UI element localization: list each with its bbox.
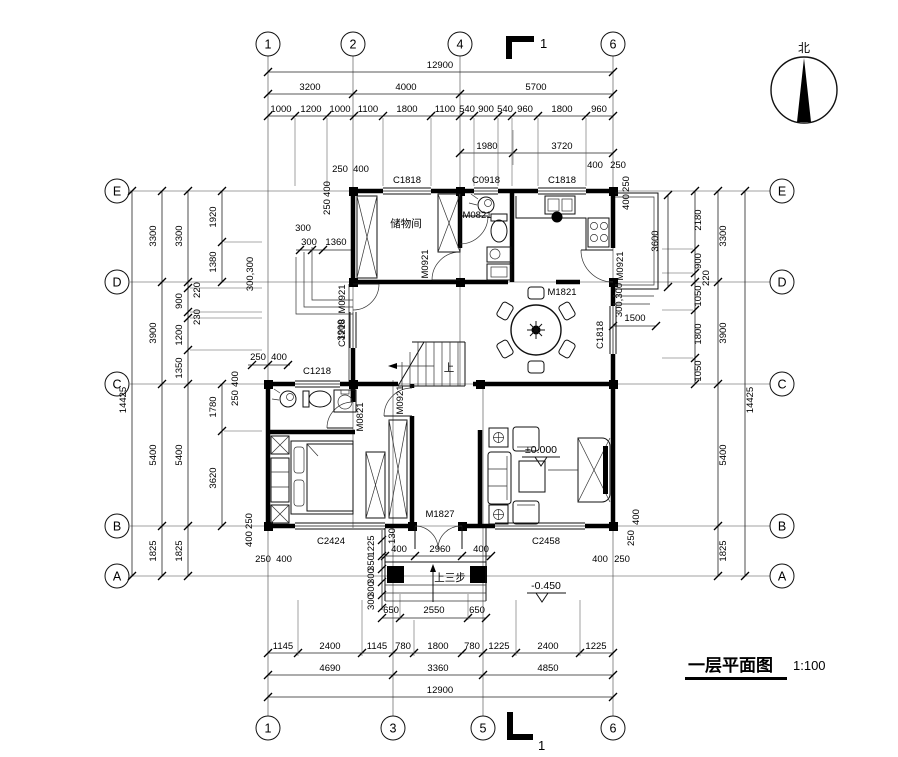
dim: 400 <box>621 194 632 210</box>
dim: 1100 <box>435 104 455 115</box>
dim: 5700 <box>525 82 546 93</box>
dim: 780 <box>464 641 480 652</box>
label-m0821: M0821 <box>355 402 366 431</box>
level-marker-porch: -0.450 <box>527 580 566 602</box>
north-label: 北 <box>798 41 810 55</box>
dim: 14425 <box>745 387 756 413</box>
dim: 1350 <box>174 357 185 378</box>
dim-extension-lines-top <box>295 118 586 186</box>
storage-shafts <box>357 194 460 278</box>
label-m0921: M0921 <box>420 249 431 278</box>
dim: 1145 <box>367 641 387 652</box>
dim: 3300 <box>148 225 159 246</box>
dim: 300,300 <box>245 257 256 291</box>
dim: 3720 <box>551 141 572 152</box>
dim: 5400 <box>174 444 185 465</box>
dim: 3600 <box>650 230 661 251</box>
axis-left-B: B <box>113 520 121 534</box>
window-c1818-storage <box>383 188 431 194</box>
dim: 250 <box>230 390 241 406</box>
axis-right-A: A <box>778 570 787 584</box>
dim: 650 <box>383 605 399 616</box>
dim: 1145 <box>273 641 293 652</box>
bedroom-furniture <box>271 436 353 523</box>
title-scale: 1:100 <box>793 658 826 673</box>
dim: 3300 <box>174 225 185 246</box>
axis-top-2: 2 <box>350 38 357 52</box>
dim: 250 <box>614 554 630 565</box>
drawing-title: 一层平面图 1:100 <box>685 656 826 680</box>
label-c1818: C1818 <box>548 175 576 186</box>
title-text: 一层平面图 <box>688 656 773 675</box>
dims-left: 14425 3300 3900 5400 1825 3300 220 900 2… <box>118 187 353 580</box>
dim: 1825 <box>148 540 159 561</box>
dim: 230 <box>192 309 203 325</box>
axis-bottom-5: 5 <box>480 722 487 736</box>
dim: 1050 <box>693 285 704 306</box>
dim: 3900 <box>718 322 729 343</box>
axis-bottom-6: 6 <box>610 722 617 736</box>
dim: 400 <box>322 181 333 197</box>
dim: 1825 <box>174 540 185 561</box>
dim: 250 <box>250 352 266 363</box>
dim: 2180 <box>693 209 704 230</box>
dim: 400 <box>473 544 489 555</box>
axis-bottom-3: 3 <box>390 722 397 736</box>
dim: 1800 <box>396 104 417 115</box>
dim: 1225 <box>585 641 606 652</box>
window-c0918-bath <box>474 188 498 194</box>
dim: 1200 <box>300 104 321 115</box>
axis-right-D: D <box>777 276 786 290</box>
room-label-storage: 储物间 <box>390 217 422 230</box>
dim: 250 <box>621 176 632 192</box>
door-m0921-kitchen <box>581 250 613 282</box>
label-m0921: M0921 <box>337 284 348 313</box>
dim: 3360 <box>427 663 448 674</box>
dim: 780 <box>395 641 411 652</box>
dim: 4000 <box>395 82 416 93</box>
axis-left-E: E <box>113 185 121 199</box>
dim: 540 <box>497 104 513 115</box>
dim: 3200 <box>299 82 320 93</box>
label-c1218: C1218 <box>303 366 331 377</box>
floor-plan-svg: 1 2 4 6 1 3 5 6 E D C B A E D C B A 1290… <box>0 0 898 757</box>
stair-up-label: 上 <box>444 362 455 374</box>
dims-bottom: 1145 2400 1145 780 1800 780 1225 2400 12… <box>244 509 642 701</box>
dim: 400 <box>592 554 608 565</box>
dim: 1360 <box>325 237 346 248</box>
dim: 540 <box>459 104 475 115</box>
dim: 400 <box>353 164 369 175</box>
kitchen-fixtures <box>516 196 610 250</box>
section-number: 1 <box>540 36 547 51</box>
door-m1827-entrance <box>415 526 462 549</box>
dim: 1780 <box>208 396 219 417</box>
dim-extension-lines-right <box>662 249 693 358</box>
window-c1818-kitchen <box>538 188 586 194</box>
dim: 300 <box>366 594 377 610</box>
label-m0921: M0921 <box>615 251 626 280</box>
dim: 250 <box>626 530 637 546</box>
label-c0918: C0918 <box>472 175 500 186</box>
dim: 1200 <box>174 324 185 345</box>
dim: 1800 <box>551 104 572 115</box>
walls <box>266 189 615 528</box>
dim: 400 <box>271 352 287 363</box>
living-room-furniture <box>488 427 610 524</box>
dim: 14425 <box>118 387 129 413</box>
dim: 250 <box>322 199 333 215</box>
dim: 2400 <box>319 641 340 652</box>
dim: 3300 <box>718 225 729 246</box>
dim: 250 <box>332 164 348 175</box>
dim: 1500 <box>624 313 645 324</box>
dim: 1800 <box>427 641 448 652</box>
dim: 900 <box>174 293 185 309</box>
dim: 1000 <box>329 104 350 115</box>
top-bathroom-fixtures <box>469 194 511 280</box>
dim: 130 <box>387 528 398 544</box>
window-c1218-left <box>350 312 356 348</box>
door-m0821-ensuite <box>327 402 353 428</box>
dim: 1225 <box>366 535 377 556</box>
level-value: -0.450 <box>531 580 561 592</box>
label-c1818: C1818 <box>595 321 606 349</box>
label-c1218: C1218 <box>337 319 348 347</box>
label-m1821: M1821 <box>547 287 576 298</box>
dim: 650 <box>469 605 485 616</box>
dim: 1920 <box>208 206 219 227</box>
dim: 3900 <box>148 322 159 343</box>
dim: 900 <box>478 104 494 115</box>
level-value: ±0.000 <box>525 444 557 456</box>
dim: 250 <box>610 160 626 171</box>
section-mark-bottom: 1 <box>507 712 545 753</box>
axis-right-E: E <box>778 185 786 199</box>
dim: 250 <box>244 513 255 529</box>
dim: 960 <box>591 104 607 115</box>
axis-left-D: D <box>112 276 121 290</box>
dim: 220 <box>701 270 712 286</box>
axis-top-4: 4 <box>457 38 464 52</box>
axis-right-B: B <box>778 520 786 534</box>
dim: 3620 <box>208 467 219 488</box>
dim: 250 <box>255 554 271 565</box>
dim: 2400 <box>537 641 558 652</box>
lower-bathroom-fixtures <box>272 389 356 412</box>
label-m1827: M1827 <box>425 509 454 520</box>
dim: 400 <box>244 531 255 547</box>
label-c2424: C2424 <box>317 536 345 547</box>
dim: 5400 <box>718 444 729 465</box>
label-m0821: M0821 <box>462 210 491 221</box>
section-mark-top: 1 <box>506 36 547 59</box>
dim: 12900 <box>427 685 453 696</box>
dim: 12900 <box>427 60 453 71</box>
label-m0921: M0921 <box>395 385 406 414</box>
dim: 900 <box>693 253 704 269</box>
axis-left-A: A <box>113 570 122 584</box>
dim: 2960 <box>429 544 450 555</box>
dim: 2550 <box>423 605 444 616</box>
dim: 5400 <box>148 444 159 465</box>
dim: 1225 <box>488 641 509 652</box>
window-c1218-bath <box>295 381 340 387</box>
dim: 1380 <box>208 251 219 272</box>
dim: 400 <box>276 554 292 565</box>
axis-top-6: 6 <box>610 38 617 52</box>
dim: 400 <box>230 371 241 387</box>
axis-bottom-1: 1 <box>265 722 272 736</box>
dim: 400 <box>631 509 642 525</box>
dim: 400 <box>587 160 603 171</box>
axis-top-1: 1 <box>265 38 272 52</box>
axis-right-C: C <box>777 378 786 392</box>
drawing-sheet: 1 2 4 6 1 3 5 6 E D C B A E D C B A 1290… <box>0 0 898 757</box>
door-m0921-terrace <box>353 284 379 310</box>
dim: 1000 <box>270 104 291 115</box>
dim: 1050 <box>693 360 704 381</box>
hall-shafts <box>366 420 407 518</box>
dim: 1980 <box>476 141 497 152</box>
dim: 4850 <box>537 663 558 674</box>
dining-table <box>496 287 576 373</box>
dim: 400 <box>391 544 407 555</box>
label-c2458: C2458 <box>532 536 560 547</box>
dim: 220 <box>192 282 203 298</box>
north-arrow: 北 <box>771 41 837 123</box>
dim: 960 <box>517 104 533 115</box>
dim: 1100 <box>358 104 378 115</box>
dim: 4690 <box>319 663 340 674</box>
porch-steps-label: 上三步 <box>434 572 466 584</box>
dim: 1800 <box>693 323 704 344</box>
dim: 1825 <box>718 540 729 561</box>
label-c1818: C1818 <box>393 175 421 186</box>
dim: 300 <box>295 223 311 234</box>
window-c2424-bedroom <box>295 523 385 529</box>
level-marker-main: ±0.000 <box>522 444 560 466</box>
section-number: 1 <box>538 738 545 753</box>
door-m0921-storage <box>432 252 460 280</box>
